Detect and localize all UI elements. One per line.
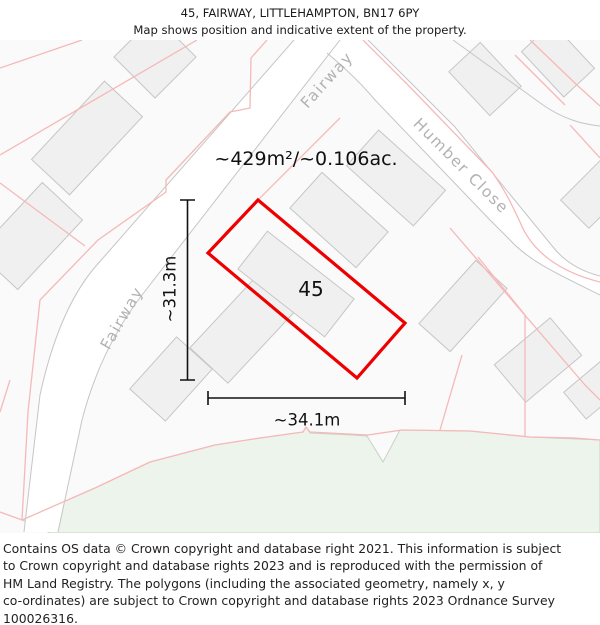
copyright-line: co-ordinates) are subject to Crown copyr… bbox=[3, 592, 597, 609]
copyright-line: Contains OS data © Crown copyright and d… bbox=[3, 540, 597, 557]
copyright-notice: Contains OS data © Crown copyright and d… bbox=[3, 540, 597, 625]
copyright-line: HM Land Registry. The polygons (includin… bbox=[3, 575, 597, 592]
plot-number-label: 45 bbox=[298, 277, 323, 301]
copyright-line: to Crown copyright and database rights 2… bbox=[3, 557, 597, 574]
page: 45, FAIRWAY, LITTLEHAMPTON, BN17 6PY Map… bbox=[0, 0, 600, 625]
area-label: ~429m²/~0.106ac. bbox=[214, 148, 397, 170]
copyright-line: 100026316. bbox=[3, 610, 597, 625]
dimension-width-label: ~34.1m bbox=[274, 411, 341, 430]
dimension-height-label: ~31.3m bbox=[161, 256, 180, 323]
map-canvas: Fairway Fairway Humber Close ~31.3m ~34.… bbox=[0, 0, 600, 625]
